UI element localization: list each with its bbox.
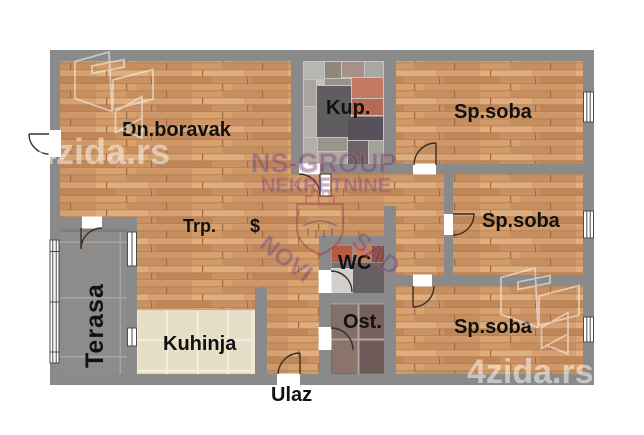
svg-text:NS-GROUP: NS-GROUP	[251, 148, 397, 178]
svg-text:Sp.soba: Sp.soba	[454, 316, 533, 338]
svg-text:Ost.: Ost.	[343, 311, 382, 333]
svg-text:Trp.: Trp.	[183, 216, 216, 236]
svg-text:Sp.soba: Sp.soba	[482, 210, 561, 232]
svg-text:Kuhinja: Kuhinja	[163, 333, 237, 355]
svg-text:4zida.rs: 4zida.rs	[36, 131, 170, 172]
svg-text:Sp.soba: Sp.soba	[454, 101, 533, 123]
svg-text:$: $	[250, 216, 260, 236]
svg-text:Ulaz: Ulaz	[271, 384, 312, 406]
svg-text:Kup.: Kup.	[326, 97, 370, 119]
svg-text:4zida.rs: 4zida.rs	[467, 353, 594, 391]
svg-text:Terasa: Terasa	[81, 283, 109, 368]
svg-text:NEKRETNINE: NEKRETNINE	[261, 175, 391, 197]
